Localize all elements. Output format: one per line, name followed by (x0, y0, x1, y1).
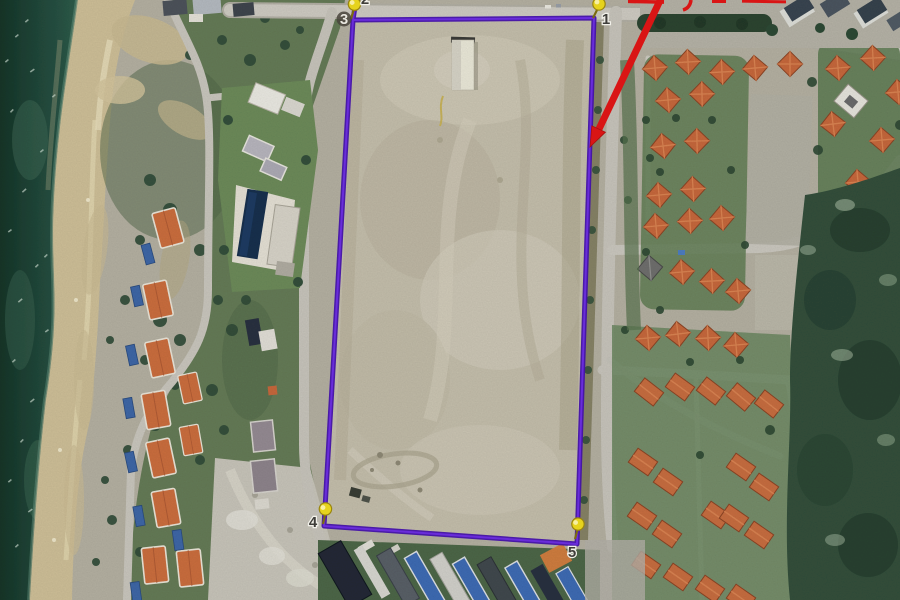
photo-grain (0, 0, 900, 600)
vertex-label-4: 4 (309, 514, 318, 531)
vertex-label-3: 3 (340, 11, 348, 28)
satellite-map-image: 1 2 3 4 5 (0, 0, 900, 600)
vertex-label-1: 1 (602, 11, 610, 28)
vertex-label-5: 5 (568, 544, 576, 561)
vertex-label-2: 2 (361, 0, 369, 8)
